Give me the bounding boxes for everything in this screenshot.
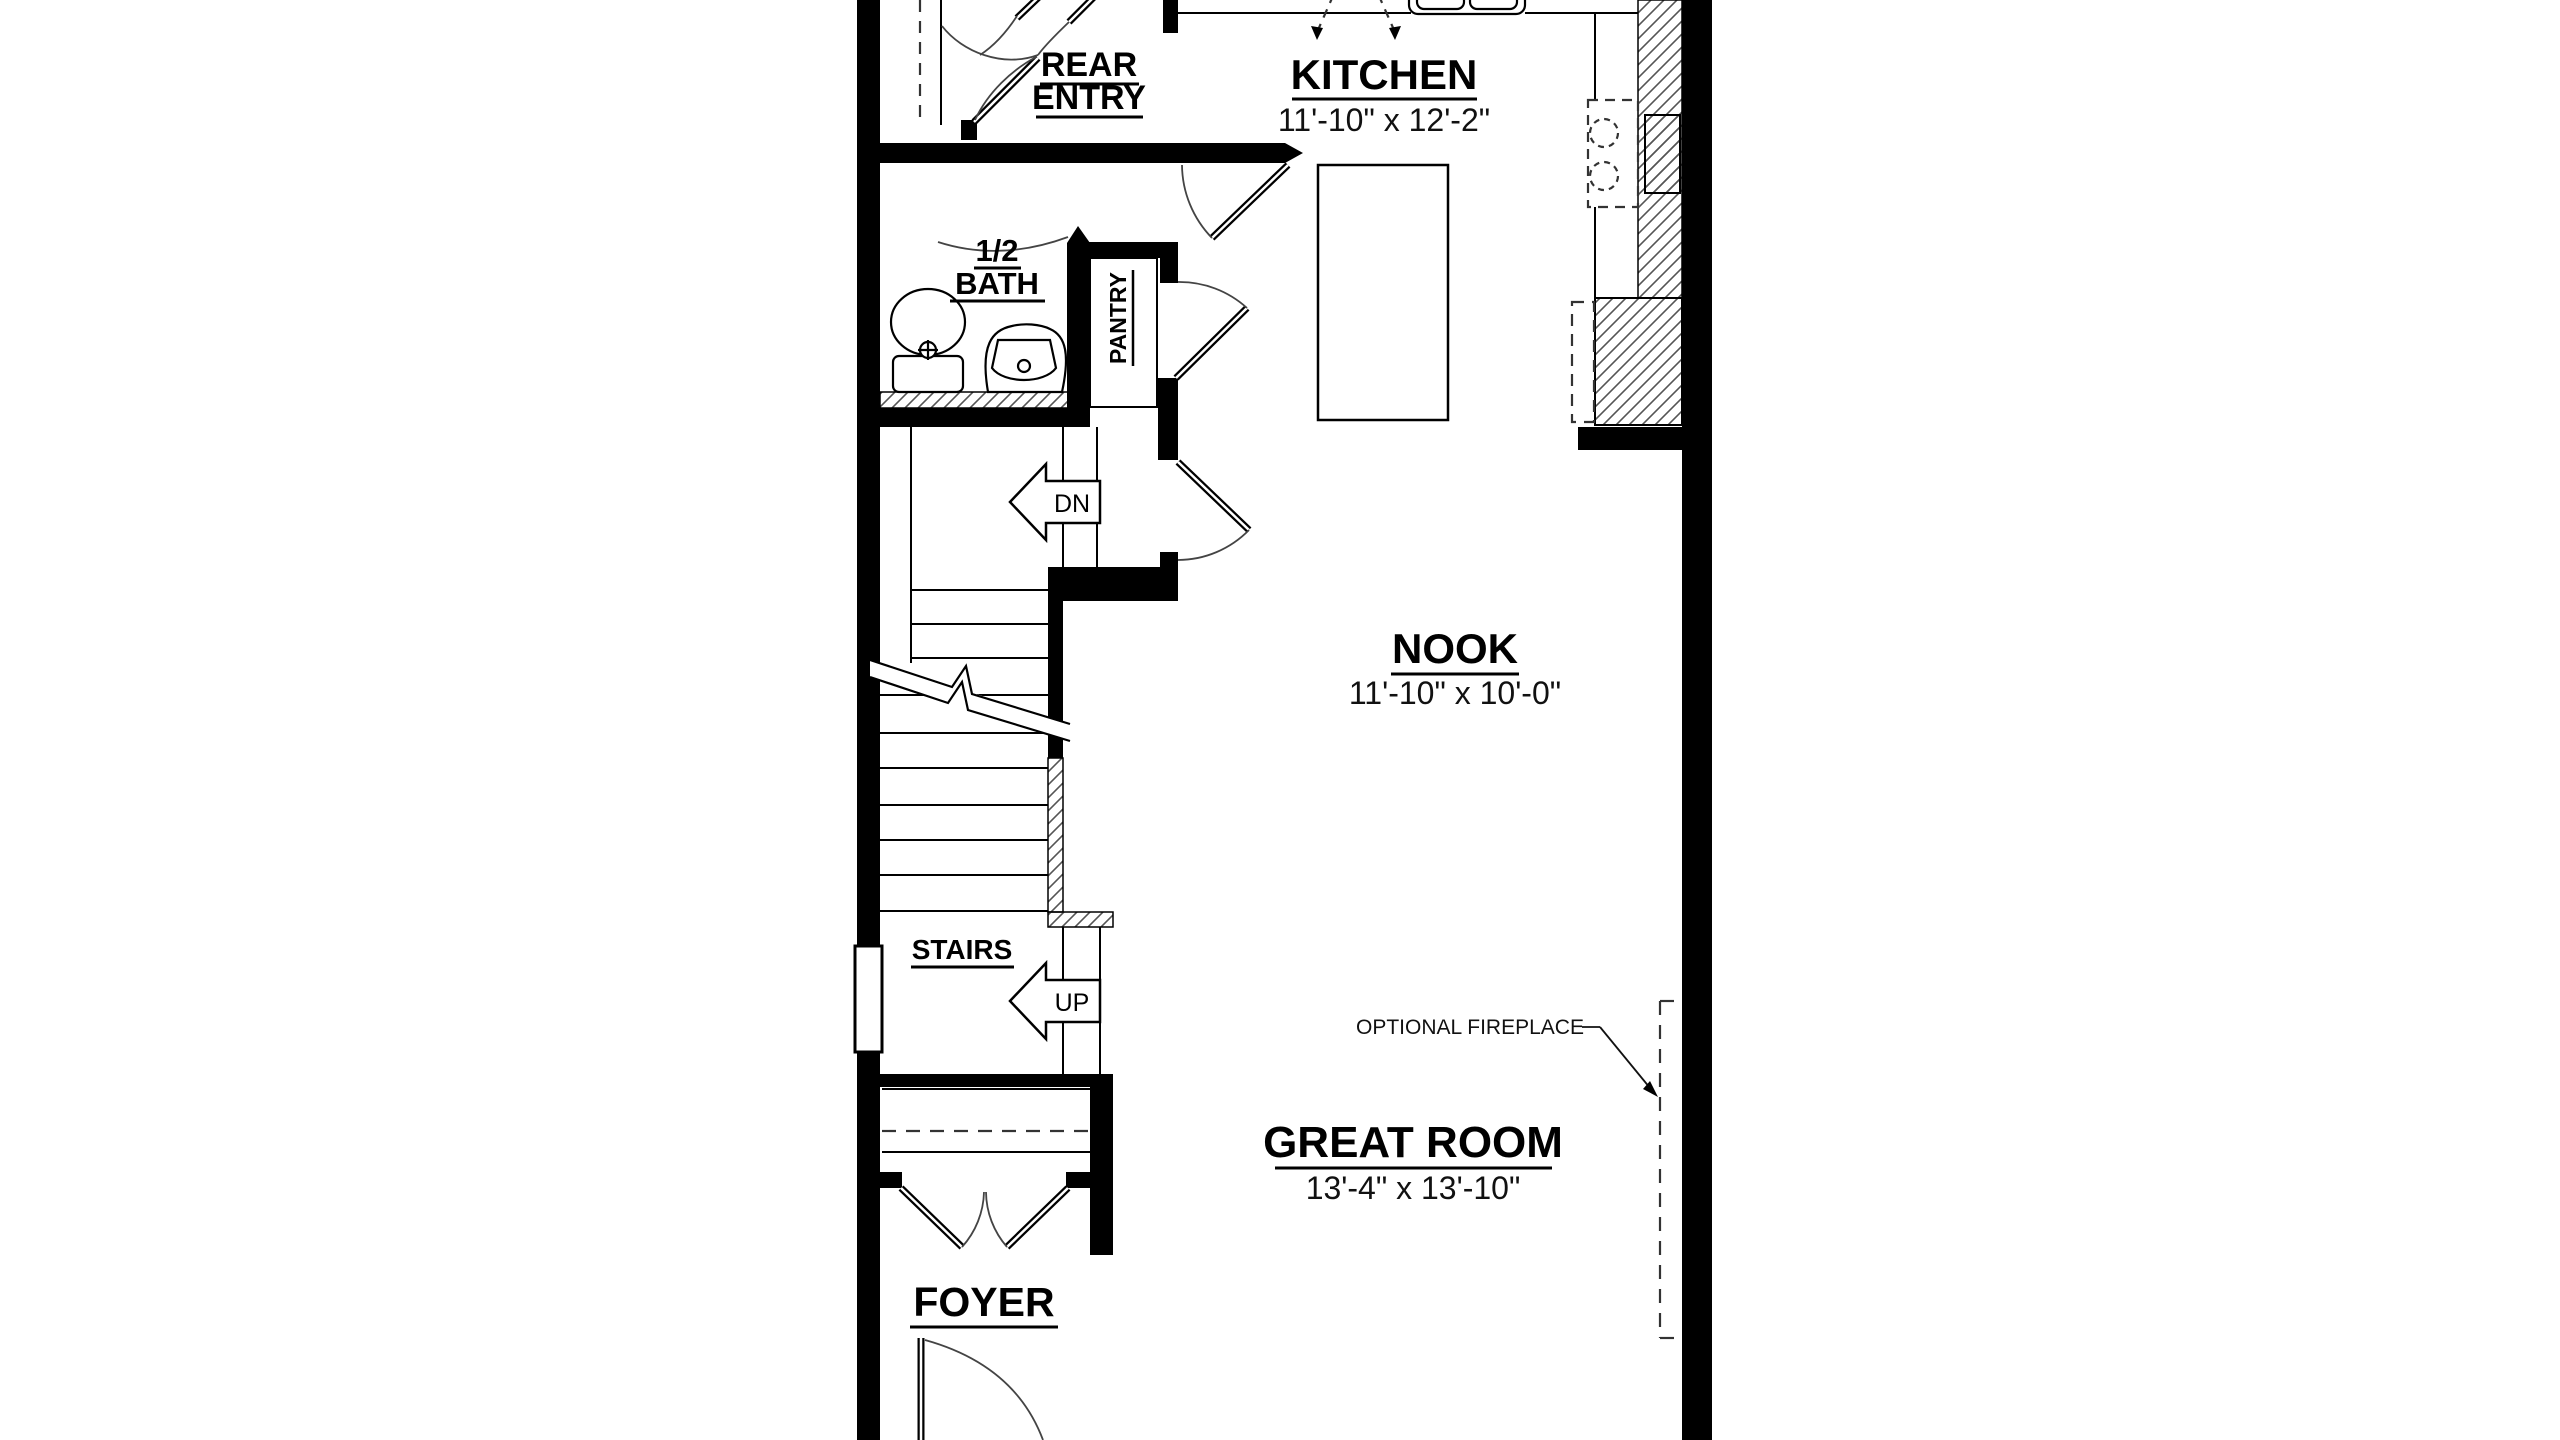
pantry-label: PANTRY (1105, 272, 1131, 364)
stair-window (855, 946, 882, 1052)
foyer-label: FOYER (913, 1279, 1054, 1325)
pantry-door-top-jamb (1160, 258, 1178, 283)
closet-left-jamb (879, 1172, 902, 1188)
foyer-east-wall (1090, 1074, 1113, 1255)
west-wall-upper (857, 0, 880, 946)
page-background (0, 0, 2560, 1440)
up-arrow-label: UP (1055, 989, 1090, 1017)
stair-south-wall (857, 1074, 1113, 1087)
west-wall-lower (857, 1052, 880, 1440)
kitchen-dims: 11'-10" x 12'-2" (1278, 102, 1490, 138)
stair-rail-hatch (1048, 758, 1063, 912)
east-wall (1682, 0, 1712, 1440)
nook-label: NOOK (1392, 625, 1518, 672)
kitchen-northwest-stub (1163, 0, 1178, 33)
pantry-north-wall (1077, 242, 1178, 258)
bath-counter-hatch (880, 392, 1072, 408)
bath-south-wall (857, 408, 1090, 427)
great-room-label: GREAT ROOM (1263, 1118, 1563, 1167)
floor-plan-drawing: REAR ENTRY KITCHEN 11'-10" x 12'-2" 1/2 … (0, 0, 2560, 1440)
kitchen-sink-symbol (1409, 0, 1525, 14)
stairs-label: STAIRS (912, 934, 1013, 965)
nook-dims: 11'-10" x 10'-0" (1349, 675, 1561, 711)
great-room-dims: 13'-4" x 13'-10" (1306, 1170, 1521, 1206)
optional-fireplace-note: OPTIONAL FIREPLACE (1356, 1016, 1584, 1039)
closet-right-jamb (1066, 1172, 1090, 1188)
half-bath-label-line2: BATH (955, 266, 1039, 301)
stair-mid-wall (1048, 567, 1178, 601)
bath-pantry-divider-wall (1067, 243, 1090, 408)
sink-vanity-symbol (893, 356, 963, 392)
kitchen-island (1318, 165, 1448, 420)
kitchen-label: KITCHEN (1291, 51, 1478, 98)
down-arrow-label: DN (1054, 490, 1090, 518)
rear-entry-door-post (961, 120, 977, 140)
hall-east-wall-segment (1158, 378, 1178, 460)
stair-rail-cap-hatch (1048, 912, 1113, 927)
range-flue-hatch (1645, 115, 1680, 193)
toilet-flush-symbol (1018, 360, 1030, 372)
half-bath-label-line1: 1/2 (975, 233, 1018, 268)
bath-north-wall (857, 143, 1285, 163)
refrigerator-hatch (1595, 298, 1682, 425)
rear-entry-label-line2: ENTRY (1032, 79, 1146, 117)
